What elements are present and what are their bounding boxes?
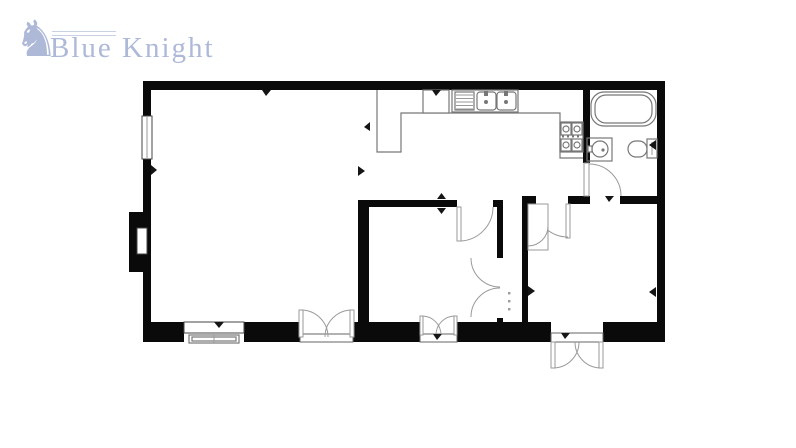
shelf-dots (508, 292, 510, 310)
bay-recess (137, 228, 147, 254)
patio-double-doors (299, 310, 354, 342)
storage-cupboard (528, 204, 548, 250)
floor-plan (0, 0, 796, 448)
wash-basin (587, 138, 612, 161)
interior-walls (358, 90, 657, 324)
french-doors-external (551, 333, 603, 368)
bathtub (591, 92, 656, 126)
bathroom-door (584, 163, 621, 196)
bedroom1-door (457, 207, 493, 241)
page: ♞ Blue Knight (0, 0, 796, 448)
bifold-closet-doors (471, 258, 500, 317)
double-sink-with-drainer (452, 90, 518, 112)
window-bottom (184, 322, 244, 343)
window-left (142, 116, 152, 159)
toilet (628, 139, 657, 158)
four-burner-hob (560, 122, 583, 152)
